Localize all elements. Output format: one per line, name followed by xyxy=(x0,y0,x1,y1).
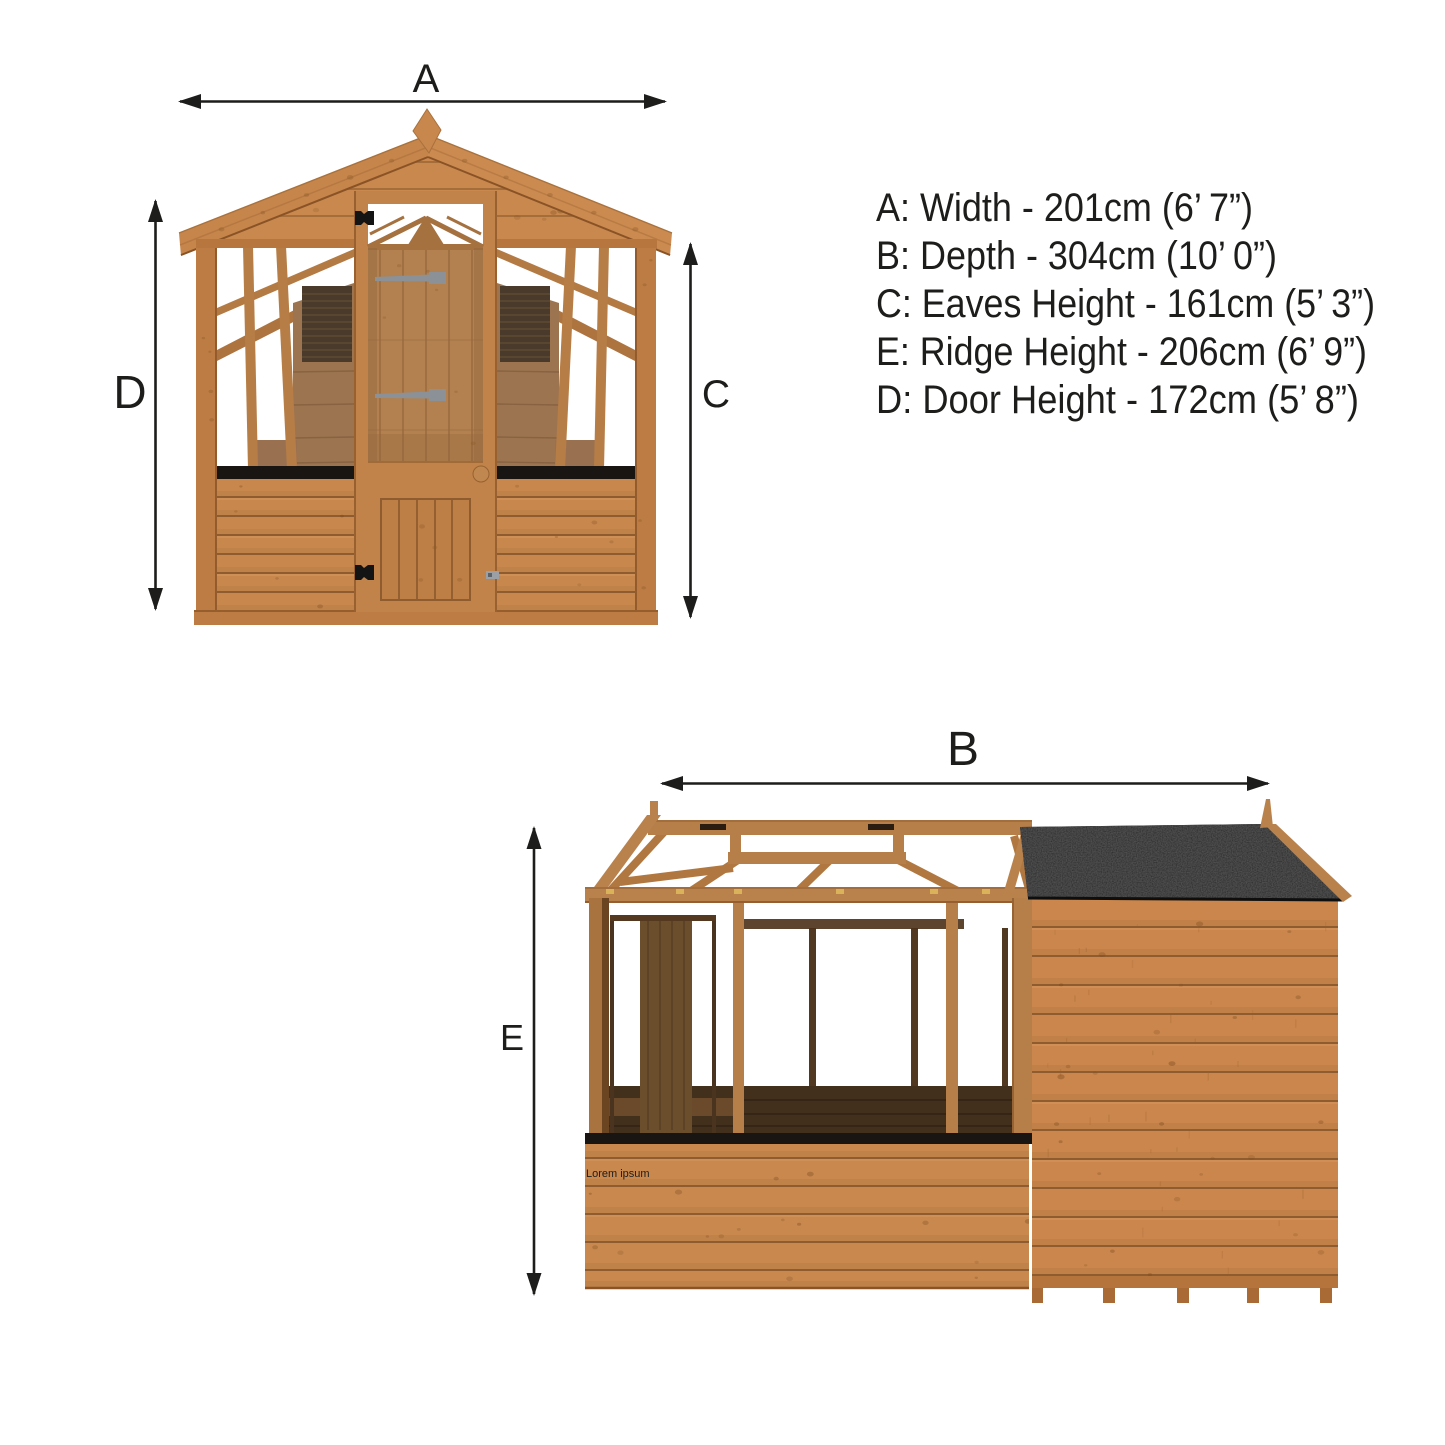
svg-text:C: C xyxy=(702,373,730,416)
svg-text:C: Eaves Height - 161cm (5’ 3”: C: Eaves Height - 161cm (5’ 3”) xyxy=(876,282,1375,326)
svg-text:D: Door Height - 172cm (5’ 8”): D: Door Height - 172cm (5’ 8”) xyxy=(876,378,1359,422)
svg-text:B: B xyxy=(947,723,979,776)
svg-text:A: A xyxy=(413,57,440,101)
svg-text:E: E xyxy=(500,1017,524,1058)
svg-text:Lorem ipsum: Lorem ipsum xyxy=(586,1168,650,1180)
svg-text:B: Depth - 304cm (10’ 0”): B: Depth - 304cm (10’ 0”) xyxy=(876,234,1277,278)
svg-text:A: Width - 201cm (6’ 7”): A: Width - 201cm (6’ 7”) xyxy=(876,186,1253,230)
svg-text:E: Ridge Height - 206cm (6’ 9”: E: Ridge Height - 206cm (6’ 9”) xyxy=(876,330,1367,374)
svg-text:D: D xyxy=(113,366,146,418)
